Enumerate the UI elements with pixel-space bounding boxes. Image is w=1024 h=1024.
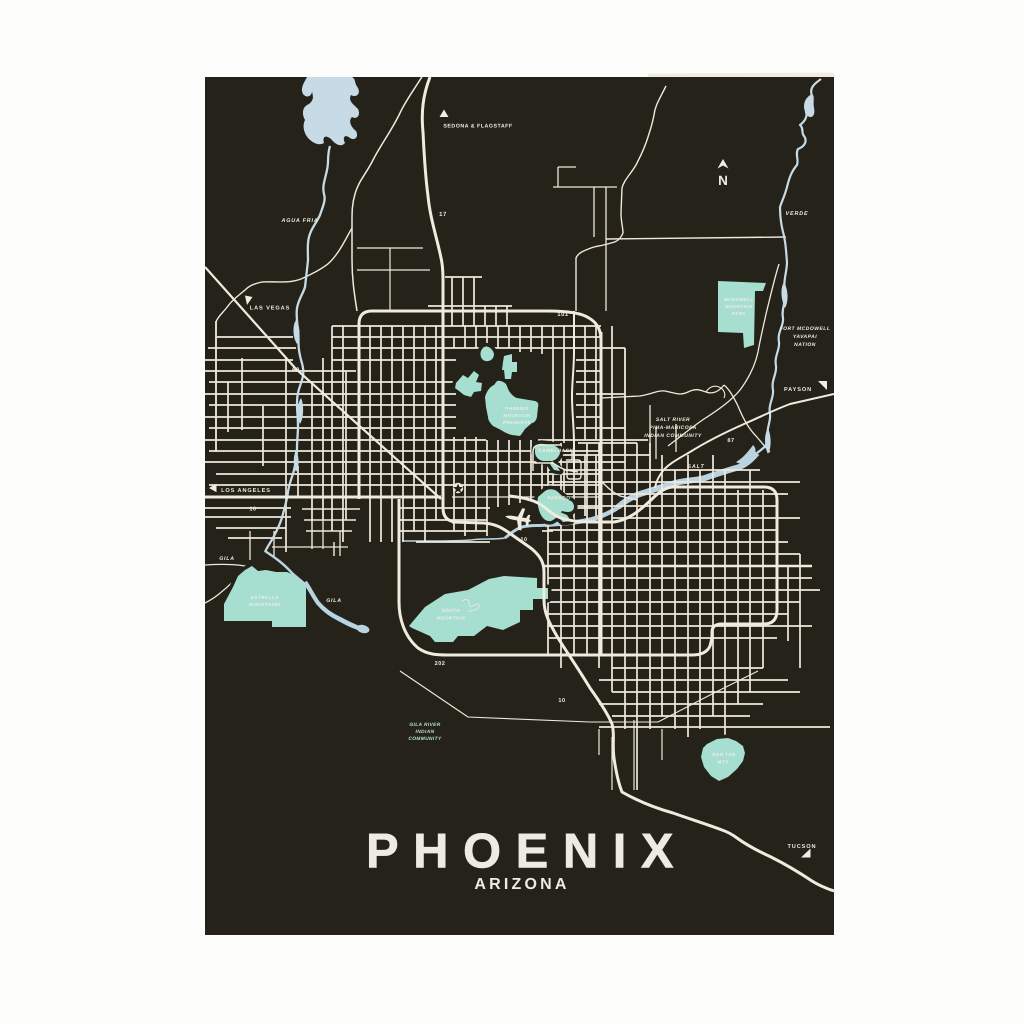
svg-text:17: 17 (439, 211, 447, 218)
svg-text:GILA: GILA (219, 556, 235, 562)
svg-text:LOS ANGELES: LOS ANGELES (221, 488, 271, 494)
svg-text:10: 10 (558, 698, 565, 704)
svg-text:202: 202 (435, 661, 446, 667)
svg-text:60: 60 (292, 367, 300, 374)
svg-text:MCDOWELL: MCDOWELL (724, 297, 754, 302)
svg-text:PAYSON: PAYSON (784, 387, 812, 393)
svg-text:YAVAPAI: YAVAPAI (793, 334, 817, 340)
svg-text:INDIAN COMMUNITY: INDIAN COMMUNITY (644, 433, 702, 439)
svg-text:GILA RIVER: GILA RIVER (409, 722, 440, 728)
svg-text:SALT RIVER: SALT RIVER (656, 417, 690, 423)
svg-text:FORT MCDOWELL: FORT MCDOWELL (780, 326, 831, 332)
svg-text:ARIZONA: ARIZONA (474, 876, 569, 893)
svg-text:MOUNTAIN: MOUNTAIN (725, 304, 752, 309)
svg-text:ESTRELLA: ESTRELLA (251, 595, 279, 600)
svg-text:PHOENIX: PHOENIX (505, 406, 528, 411)
svg-text:MOUNTAIN: MOUNTAIN (437, 616, 466, 621)
svg-text:PHOENIX: PHOENIX (366, 825, 688, 879)
svg-text:MOUNTAINS: MOUNTAINS (249, 602, 281, 607)
svg-text:87: 87 (727, 438, 734, 444)
svg-text:TUCSON: TUCSON (787, 844, 816, 850)
svg-text:INDIAN: INDIAN (416, 729, 435, 735)
svg-text:CAMELBACK: CAMELBACK (538, 448, 573, 454)
svg-text:NATION: NATION (794, 342, 816, 348)
svg-text:MOUNTAIN: MOUNTAIN (503, 413, 530, 418)
svg-text:VERDE: VERDE (785, 211, 808, 217)
svg-text:SEDONA & FLAGSTAFF: SEDONA & FLAGSTAFF (443, 124, 513, 130)
svg-text:SALT: SALT (687, 464, 704, 470)
svg-text:SAN TAN: SAN TAN (712, 752, 736, 757)
svg-text:10: 10 (521, 537, 528, 543)
svg-text:SOUTH: SOUTH (442, 608, 461, 613)
svg-text:PRESERVE: PRESERVE (503, 420, 531, 425)
svg-text:N: N (718, 173, 728, 188)
svg-text:101: 101 (557, 311, 569, 318)
svg-text:LAS VEGAS: LAS VEGAS (250, 306, 290, 312)
svg-text:AGUA FRIA: AGUA FRIA (281, 218, 319, 224)
svg-text:PARK: PARK (732, 311, 746, 316)
svg-text:10: 10 (249, 507, 256, 513)
svg-text:PAPAGO: PAPAGO (547, 496, 570, 502)
svg-text:PIMA-MARICOPA: PIMA-MARICOPA (649, 425, 697, 431)
svg-text:GILA: GILA (326, 598, 342, 604)
svg-text:MTS.: MTS. (718, 760, 731, 765)
svg-text:COMMUNITY: COMMUNITY (408, 736, 442, 742)
